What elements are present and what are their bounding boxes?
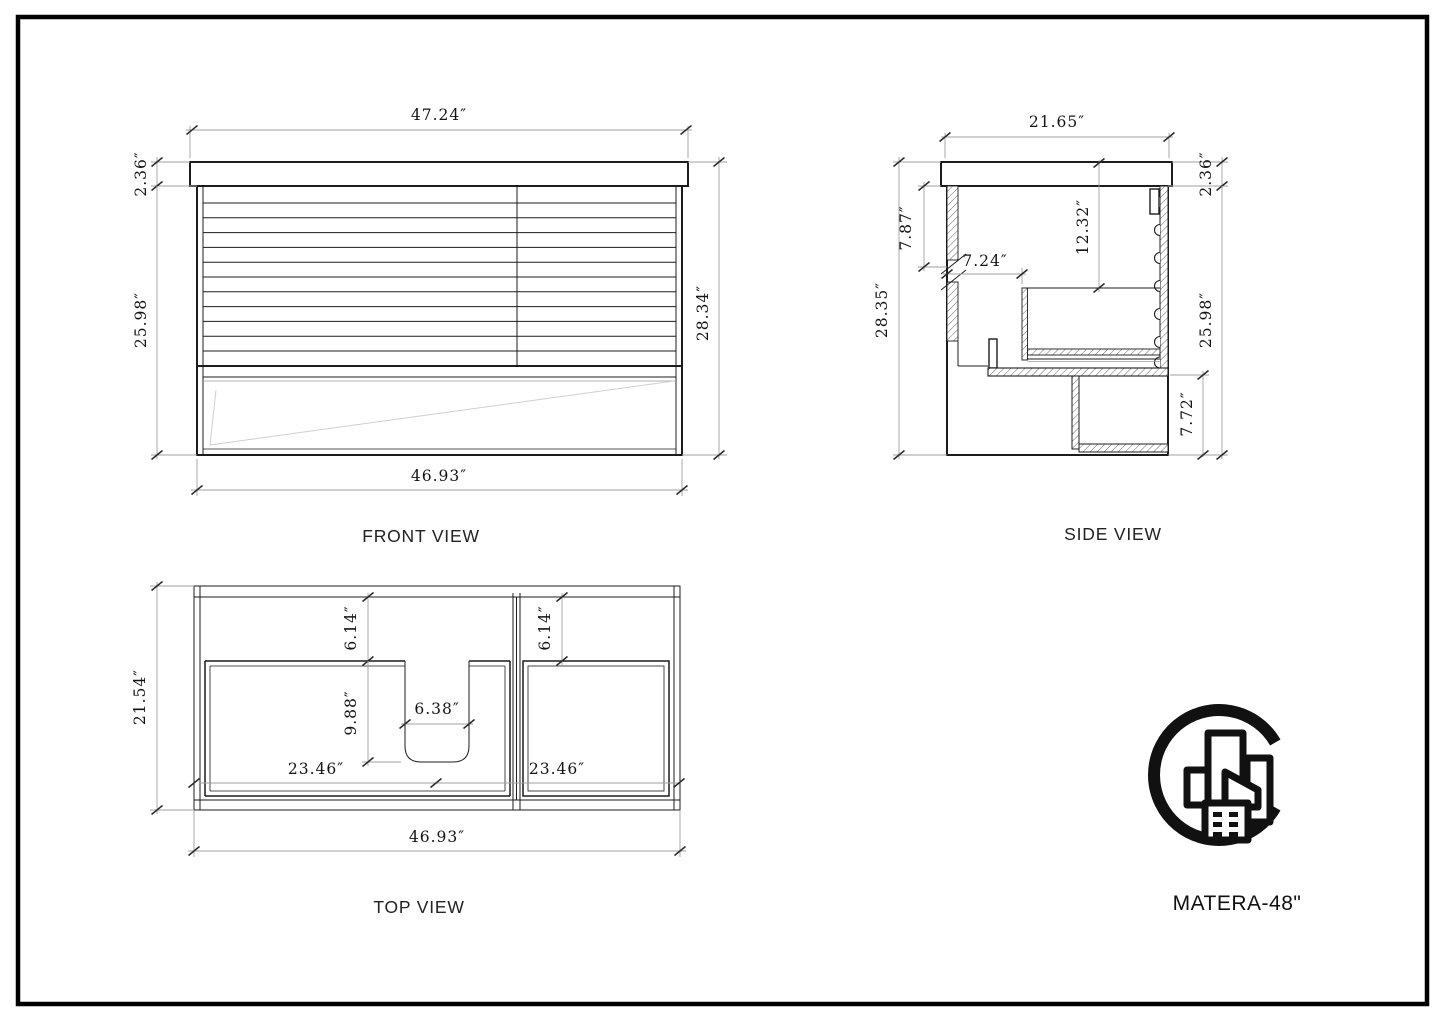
side-drawer-box xyxy=(1022,288,1160,362)
top-outline xyxy=(194,586,680,810)
side-door-strip xyxy=(1150,186,1168,368)
front-view: 47.24″ 2.36″ 25.98″ 28.34″ 46.93″ FRONT … xyxy=(132,106,727,546)
side-shelf-board xyxy=(988,368,1168,376)
brand-block: MATERA-48" xyxy=(1154,710,1301,915)
product-name: MATERA-48" xyxy=(1173,892,1302,915)
dim-side-shelf-height: 7.72″ xyxy=(1178,391,1196,436)
side-view-drawing xyxy=(941,162,1172,455)
dim-top-left-door-width: 23.46″ xyxy=(288,760,344,778)
front-open-shelf xyxy=(203,381,676,449)
side-lower-compartment xyxy=(1072,376,1168,452)
sheet-border xyxy=(18,17,1427,1004)
dim-side-total-height: 28.35″ xyxy=(873,282,891,338)
logo-building-windows xyxy=(1205,803,1248,840)
technical-drawing: 47.24″ 2.36″ 25.98″ 28.34″ 46.93″ FRONT … xyxy=(0,0,1445,1021)
dim-front-body-height: 25.98″ xyxy=(132,292,150,348)
dim-top-bottom-width: 46.93″ xyxy=(409,828,465,846)
dim-side-wall-inset: 7.24″ xyxy=(962,252,1007,270)
dim-top-sink-width: 6.38″ xyxy=(414,700,459,718)
city-c-logo xyxy=(1154,710,1275,840)
side-countertop xyxy=(941,162,1172,186)
side-view: 21.65″ 28.35″ 7.87″ 7.24″ 12.32″ 2.36″ xyxy=(873,113,1228,544)
front-view-label: FRONT VIEW xyxy=(362,526,480,546)
dim-front-total-height: 28.34″ xyxy=(694,285,712,341)
front-view-drawing xyxy=(190,162,688,455)
top-dimensions: 21.54″ 6.14″ 6.14″ 9.88″ 6.38″ 23.46″ 23… xyxy=(131,582,686,858)
dim-top-sink-depth: 9.88″ xyxy=(342,690,360,735)
side-drawer-stop xyxy=(989,339,997,368)
side-left-wall xyxy=(941,186,988,366)
top-view-label: TOP VIEW xyxy=(373,897,464,917)
dim-top-depth: 21.54″ xyxy=(131,669,149,725)
top-center-divider xyxy=(513,593,520,810)
dim-top-left-inset: 6.14″ xyxy=(342,605,360,650)
front-dimensions: 47.24″ 2.36″ 25.98″ 28.34″ 46.93″ xyxy=(132,106,727,496)
side-cabinet-body xyxy=(947,186,1168,455)
dim-side-body-height: 25.98″ xyxy=(1197,292,1215,348)
dim-side-counter-height: 2.36″ xyxy=(1197,151,1215,196)
dim-side-drawer-drop: 12.32″ xyxy=(1074,199,1092,255)
front-cabinet-body xyxy=(197,186,682,455)
drawing-sheet: 47.24″ 2.36″ 25.98″ 28.34″ 46.93″ FRONT … xyxy=(0,0,1445,1021)
side-view-label: SIDE VIEW xyxy=(1064,524,1162,544)
dim-front-top-width: 47.24″ xyxy=(411,106,467,124)
side-dimensions: 21.65″ 28.35″ 7.87″ 7.24″ 12.32″ 2.36″ xyxy=(873,113,1228,460)
dim-top-right-inset: 6.14″ xyxy=(536,605,554,650)
dim-side-top-depth: 21.65″ xyxy=(1029,113,1085,131)
dim-front-counter-height: 2.36″ xyxy=(132,151,150,196)
front-countertop xyxy=(190,162,688,186)
dim-side-upper-inner-height: 7.87″ xyxy=(897,205,915,250)
dim-top-right-door-width: 23.46″ xyxy=(529,760,585,778)
dim-front-bottom-width: 46.93″ xyxy=(411,467,467,485)
top-view-drawing xyxy=(194,586,680,810)
front-door-slats xyxy=(203,203,676,351)
top-view: 21.54″ 6.14″ 6.14″ 9.88″ 6.38″ 23.46″ 23… xyxy=(131,582,686,918)
